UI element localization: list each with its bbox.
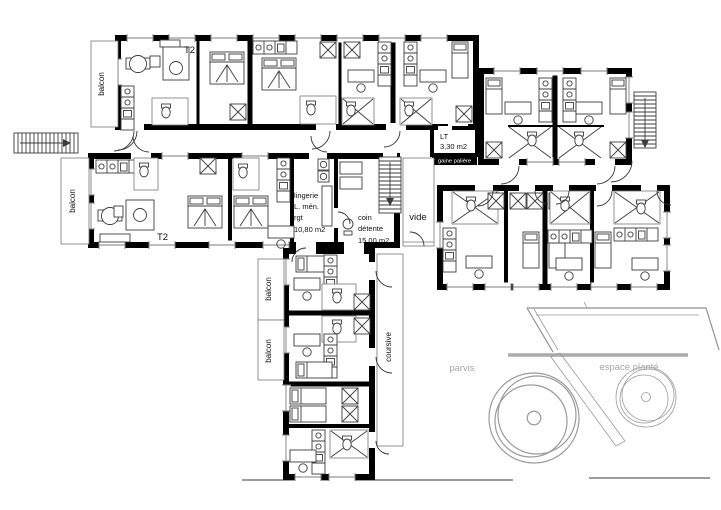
label-lingerie-3: rgt	[294, 213, 304, 222]
label-t2-upper: T2	[184, 45, 195, 56]
floor-plan-svg: parvis espace planté	[0, 0, 721, 510]
label-espace-plante: espace planté	[599, 362, 658, 373]
label-balcony-south-upper: balcon	[264, 277, 273, 301]
label-lt-area: 3,30 m2	[440, 142, 467, 151]
balcony-south-upper: balcon	[258, 259, 284, 320]
label-parvis: parvis	[449, 363, 475, 374]
wing-mid: T2 lingerie L. mén. rgt 10,80 m2 coin d	[87, 152, 402, 250]
floor-plan-page: parvis espace planté	[0, 0, 721, 510]
wing-south-east	[436, 184, 672, 292]
canopy-outline	[527, 302, 719, 352]
label-lingerie-2: L. mén.	[294, 202, 319, 211]
label-vide: vide	[409, 212, 426, 223]
label-balcony-top: balcon	[97, 72, 106, 96]
tree-large	[489, 373, 579, 463]
wing-north: T2	[114, 34, 477, 132]
label-coin-3: 15,00 m2	[358, 236, 389, 245]
exterior-stair-west	[14, 133, 78, 153]
label-lt-name: LT	[440, 132, 449, 141]
balcony-north: balcon	[91, 41, 118, 127]
label-lingerie-4: 10,80 m2	[294, 225, 325, 234]
tree-small	[616, 367, 676, 427]
exterior-stair-east	[634, 92, 656, 148]
label-coin-1: coin	[358, 213, 372, 222]
vide-area: vide	[403, 158, 434, 246]
wing-south	[282, 247, 377, 482]
balcony-mid: balcon	[61, 158, 89, 244]
label-coursive: coursive	[384, 332, 393, 362]
label-coin-2: détente	[358, 224, 383, 233]
label-balcony-mid: balcon	[68, 189, 77, 213]
lt-room: LT 3,30 m2 gaine palière	[432, 126, 477, 165]
balcony-south-lower: balcon	[258, 320, 284, 380]
label-balcony-south-lower: balcon	[264, 339, 273, 363]
label-lingerie-1: lingerie	[294, 191, 318, 200]
label-gaine-paliere: gaine palière	[438, 159, 471, 165]
label-t2-mid: T2	[157, 232, 168, 243]
wing-north-east	[481, 67, 634, 167]
